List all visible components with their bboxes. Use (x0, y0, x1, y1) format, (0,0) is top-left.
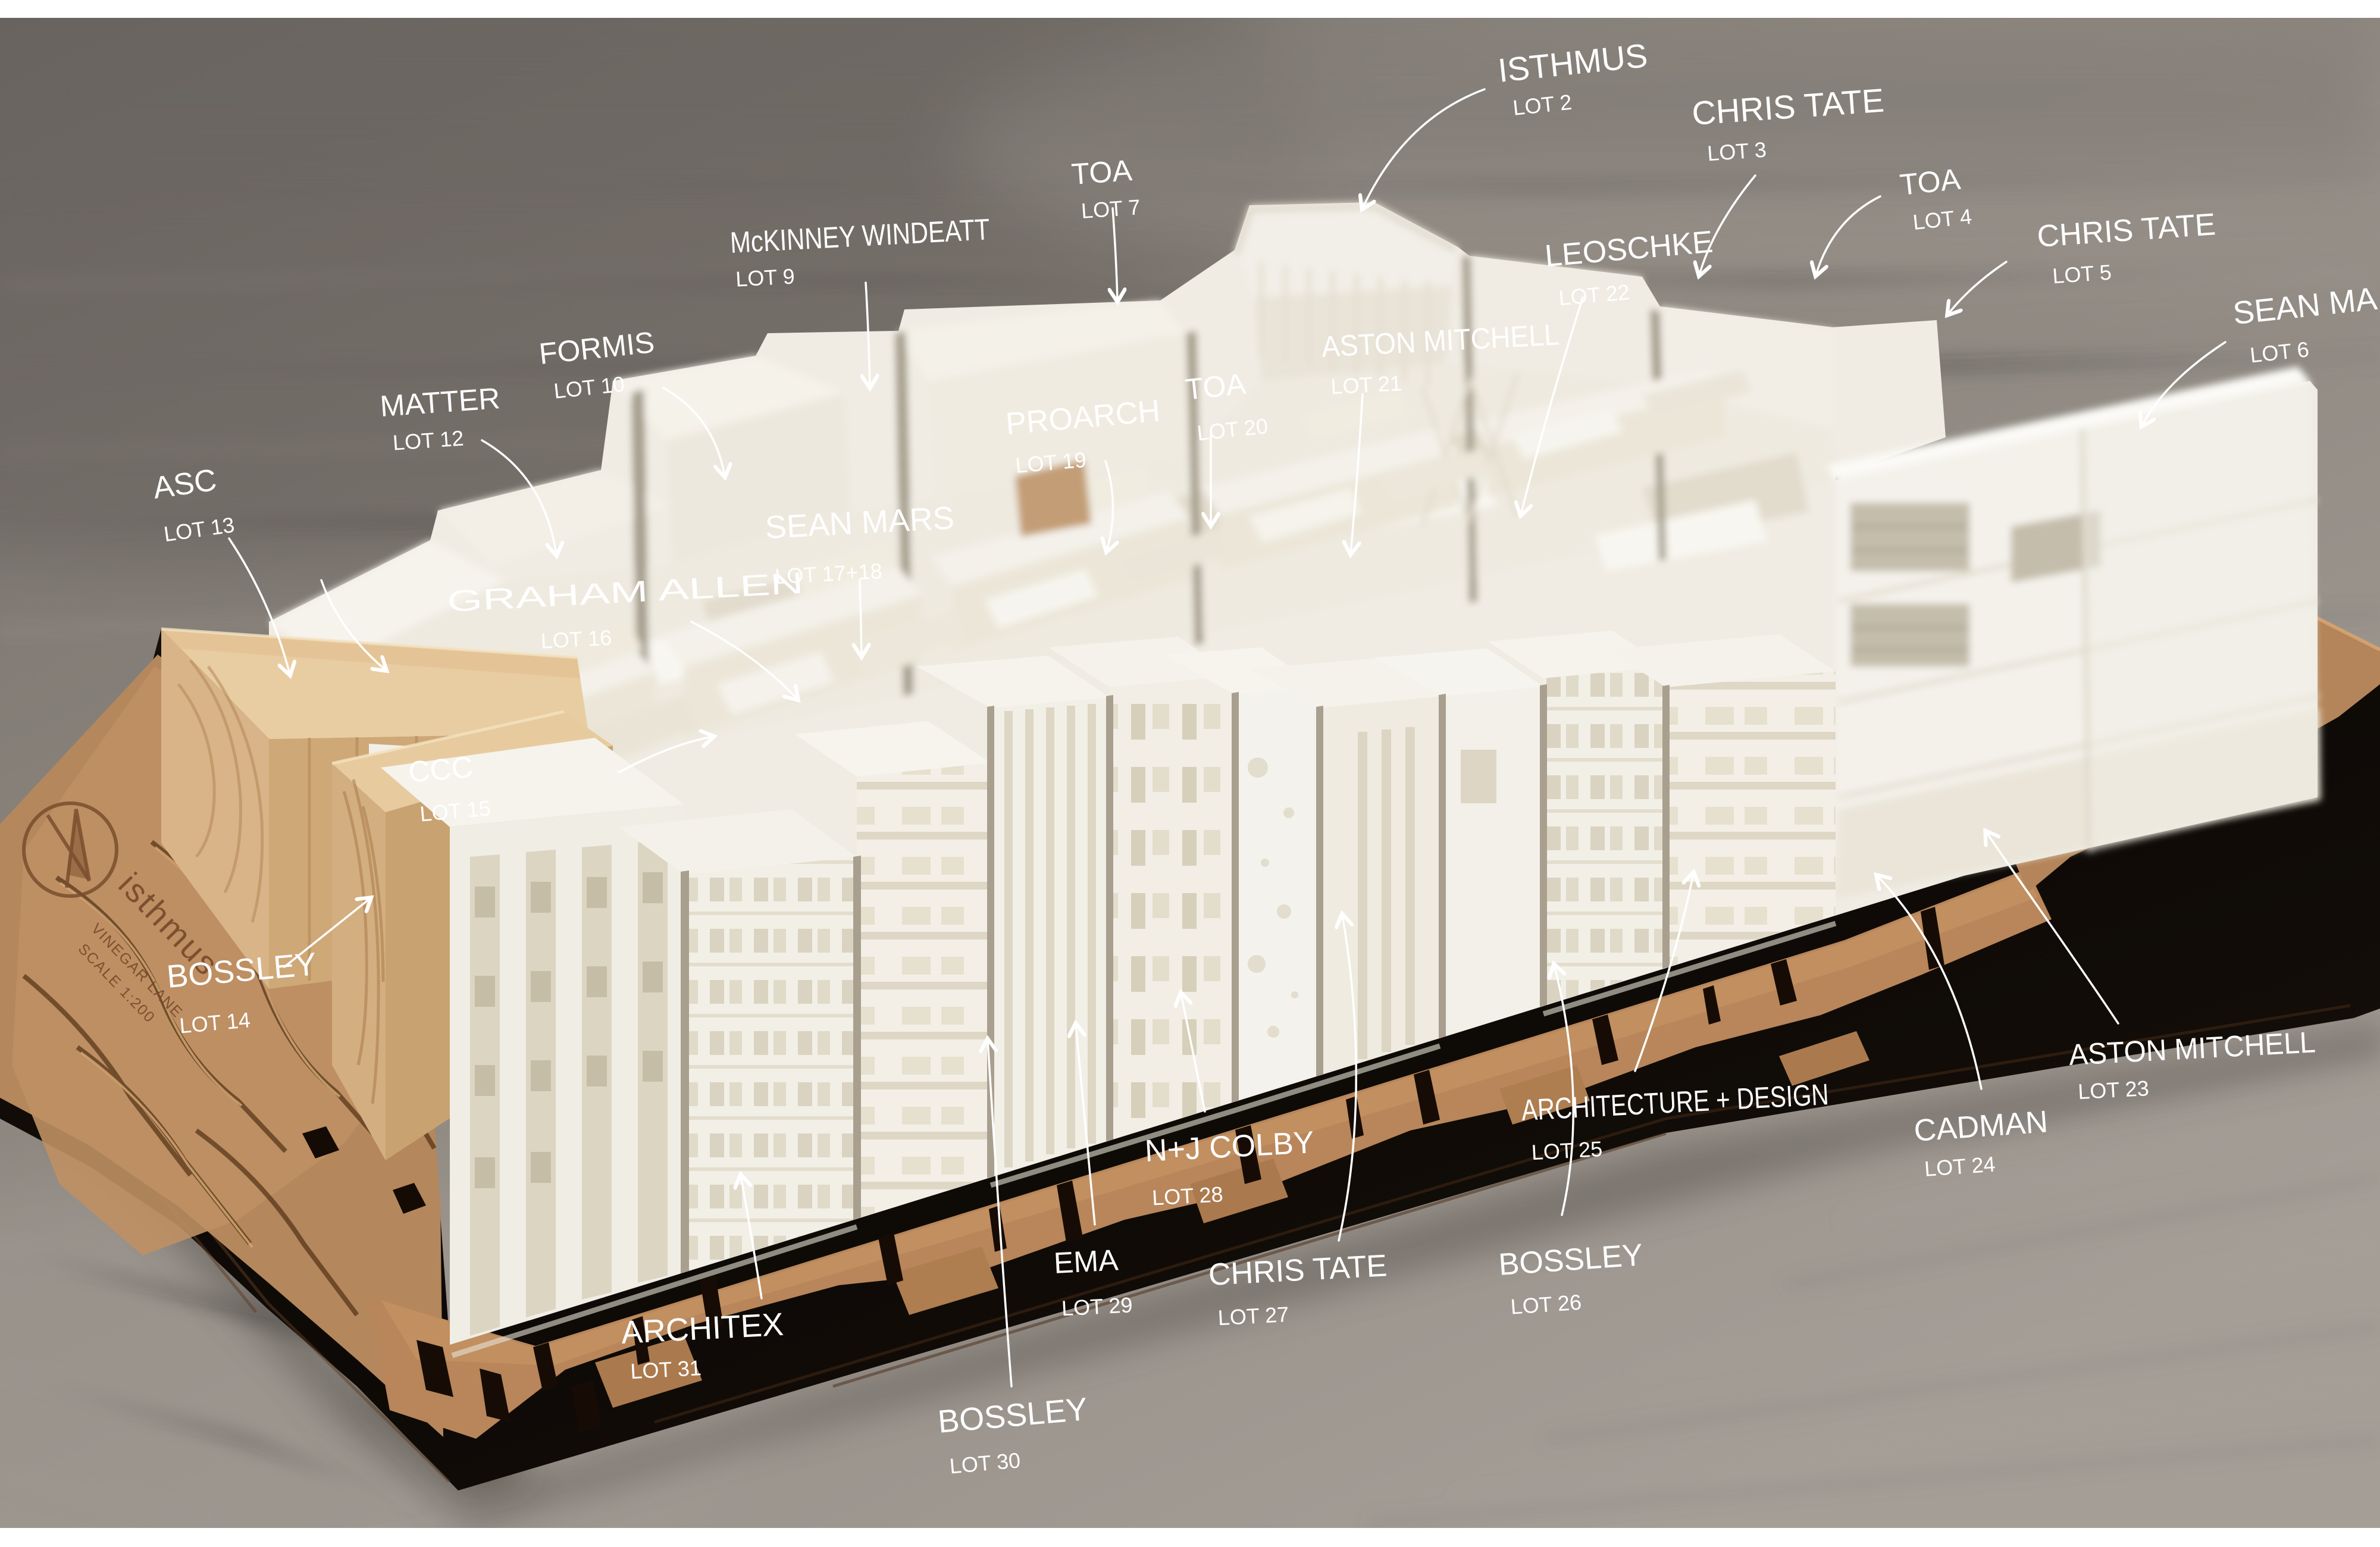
svg-text:LOT 23: LOT 23 (2077, 1076, 2149, 1104)
svg-text:LOT 26: LOT 26 (1510, 1290, 1582, 1319)
svg-text:LOT 5: LOT 5 (2052, 260, 2112, 289)
svg-text:LOT 29: LOT 29 (1061, 1292, 1133, 1320)
svg-text:LOT 16: LOT 16 (540, 625, 612, 653)
svg-text:TOA: TOA (1898, 162, 1962, 202)
svg-text:LOT 7: LOT 7 (1081, 195, 1141, 223)
svg-text:LOT 9: LOT 9 (735, 264, 795, 291)
svg-text:TOA: TOA (1070, 154, 1133, 191)
svg-text:LOT 12: LOT 12 (392, 425, 465, 455)
svg-text:LOT 25: LOT 25 (1531, 1136, 1603, 1164)
svg-text:EMA: EMA (1053, 1243, 1120, 1280)
svg-text:LOT 31: LOT 31 (630, 1355, 702, 1383)
svg-text:LOT 28: LOT 28 (1151, 1182, 1223, 1210)
svg-text:TOA: TOA (1183, 367, 1248, 406)
svg-text:LOT 3: LOT 3 (1706, 137, 1767, 166)
svg-text:LOT 21: LOT 21 (1330, 371, 1402, 399)
svg-text:CCC: CCC (407, 750, 474, 789)
svg-text:LOT 27: LOT 27 (1217, 1302, 1289, 1330)
svg-text:LOT 24: LOT 24 (1924, 1152, 1996, 1181)
